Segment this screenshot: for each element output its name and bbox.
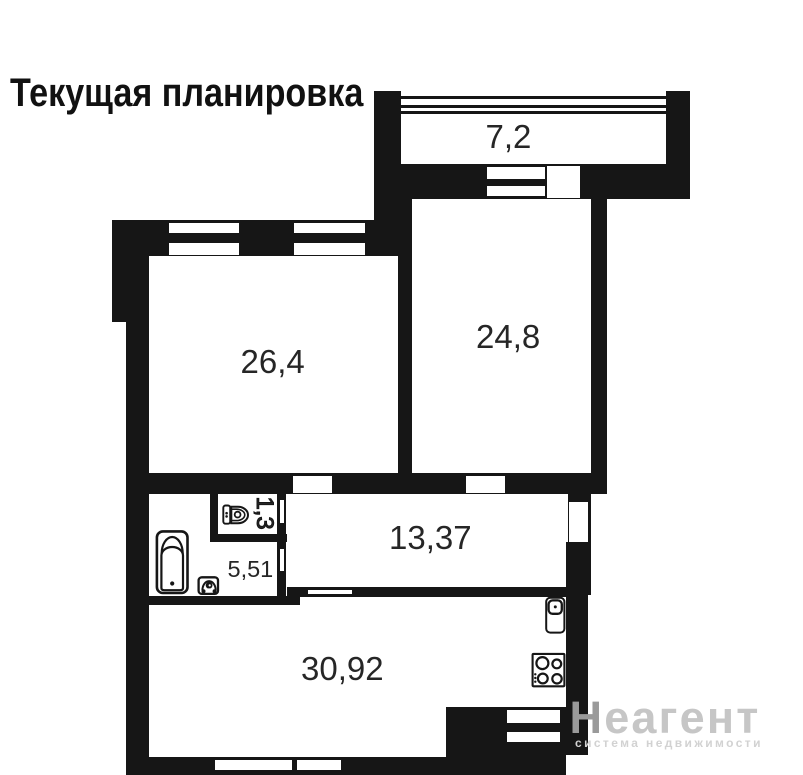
svg-text:1,3: 1,3 bbox=[251, 497, 278, 530]
